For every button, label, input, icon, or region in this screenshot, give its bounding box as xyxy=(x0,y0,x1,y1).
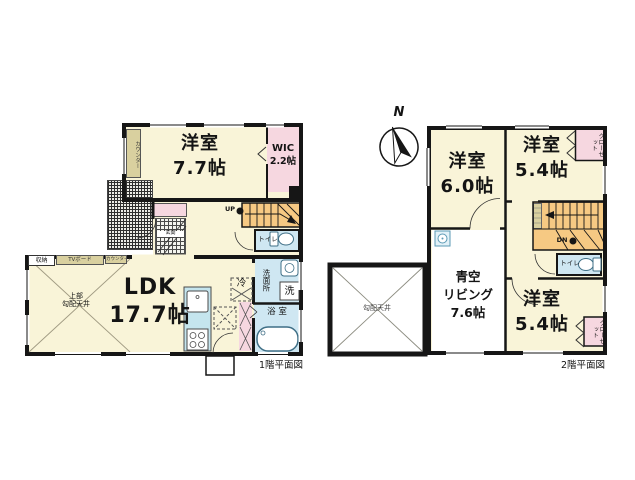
kitchen-stove-icon xyxy=(187,329,208,350)
f1-ldk-label: LDK 17.7帖 xyxy=(92,275,208,329)
f1-entrance-label: 玄関 xyxy=(157,231,184,237)
f2-sky-living-label: 青空 リビング 7.6帖 xyxy=(430,268,506,322)
f2-closet-bottom-label: クローゼット xyxy=(586,320,604,344)
f1-fridge-label: 冷 xyxy=(232,279,251,290)
compass-icon xyxy=(374,121,423,171)
f1-bath-label: 浴 室 xyxy=(256,308,298,318)
f2-toilet-label: トイレ xyxy=(558,260,582,267)
f1-counter-kitchen-label: カウンター xyxy=(105,255,127,264)
f2-bedroom-c-label: 洋室 5.4帖 xyxy=(506,290,578,335)
f2-closet-top-label: クローゼット xyxy=(581,133,603,157)
f1-storage-label: 収納 xyxy=(28,255,55,266)
f1-caption: 1階平面図 xyxy=(246,361,316,372)
f2-dn-dot xyxy=(570,238,577,245)
f1-washroom-label: 洗面所 xyxy=(257,261,270,299)
f1-up-label: UP xyxy=(222,206,238,213)
f2-sloped-ceiling-label: 勾配天井 xyxy=(350,304,404,312)
dining-table-mark xyxy=(214,307,236,329)
side-cabinet-marks xyxy=(240,303,251,350)
f1-laundry-label: 洗 xyxy=(281,286,298,298)
plan-linework xyxy=(0,0,635,480)
f2-bedroom-a-label: 洋室 6.0帖 xyxy=(430,152,505,197)
f2-caption: 2階平面図 xyxy=(548,361,618,372)
f1-counter-wall-label: カウンター xyxy=(126,129,141,178)
bathtub-icon xyxy=(257,327,298,351)
f1-wic-label: WIC 2.2帖 xyxy=(265,143,301,167)
f1-tv-board-label: TVボード xyxy=(56,255,104,265)
f2-bedroom-b-label: 洋室 5.4帖 xyxy=(506,136,578,181)
f2-north-label: N xyxy=(390,106,408,121)
f2-dn-label: DN xyxy=(554,237,570,244)
washbasin-icon xyxy=(281,260,298,276)
f1-back-step xyxy=(206,356,234,375)
f1-stairs-icon xyxy=(250,203,300,227)
floorplan-canvas: カウンター 洋室 7.7帖 WIC 2.2帖 UP トイレ 洗面所 洗 冷 浴 … xyxy=(0,0,635,480)
f1-toilet-label: トイレ xyxy=(256,236,280,243)
sky-living-faucet-icon xyxy=(435,231,450,246)
f1-bedroom-label: 洋室 7.7帖 xyxy=(143,134,257,179)
